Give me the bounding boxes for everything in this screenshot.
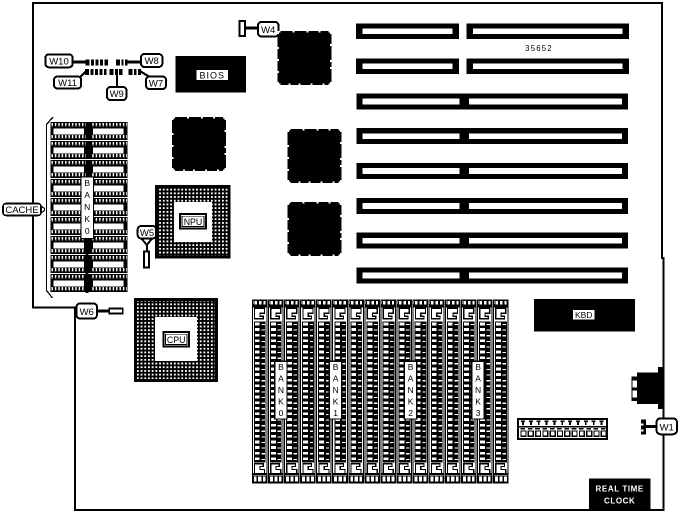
svg-text:CACHE: CACHE <box>5 205 38 216</box>
svg-text:W9: W9 <box>110 89 124 100</box>
svg-text:B: B <box>475 362 481 372</box>
svg-text:K: K <box>475 397 481 407</box>
svg-text:B: B <box>333 362 339 372</box>
svg-text:0: 0 <box>279 408 284 418</box>
svg-text:W5: W5 <box>140 228 154 239</box>
svg-text:W8: W8 <box>145 56 159 67</box>
svg-text:A: A <box>475 374 481 384</box>
svg-text:W7: W7 <box>149 78 163 89</box>
svg-text:NPU: NPU <box>184 217 203 227</box>
svg-text:K: K <box>84 214 90 224</box>
svg-text:N: N <box>475 385 481 395</box>
svg-text:REAL TIME: REAL TIME <box>596 485 644 494</box>
svg-text:BIOS: BIOS <box>199 71 225 81</box>
svg-text:A: A <box>333 374 339 384</box>
svg-text:N: N <box>408 385 414 395</box>
svg-text:B: B <box>84 178 90 188</box>
svg-text:W4: W4 <box>261 25 275 36</box>
svg-text:K: K <box>408 397 414 407</box>
svg-text:3: 3 <box>476 408 481 418</box>
svg-text:W1: W1 <box>660 422 674 433</box>
svg-text:W6: W6 <box>80 307 94 318</box>
svg-text:B: B <box>408 362 414 372</box>
svg-text:KBD: KBD <box>575 310 592 320</box>
svg-text:K: K <box>278 397 284 407</box>
svg-text:1: 1 <box>333 408 338 418</box>
svg-text:CLOCK: CLOCK <box>604 497 635 506</box>
svg-text:N: N <box>333 385 339 395</box>
svg-text:A: A <box>278 374 284 384</box>
svg-text:N: N <box>84 202 90 212</box>
svg-text:CPU: CPU <box>167 335 186 345</box>
svg-text:0: 0 <box>85 226 90 236</box>
svg-text:W10: W10 <box>49 56 69 67</box>
svg-text:A: A <box>84 190 90 200</box>
svg-text:N: N <box>278 385 284 395</box>
svg-text:W11: W11 <box>58 78 77 89</box>
svg-text:2: 2 <box>408 408 413 418</box>
svg-text:A: A <box>408 374 414 384</box>
svg-text:35652: 35652 <box>525 44 553 53</box>
svg-text:K: K <box>333 397 339 407</box>
svg-text:B: B <box>278 362 284 372</box>
